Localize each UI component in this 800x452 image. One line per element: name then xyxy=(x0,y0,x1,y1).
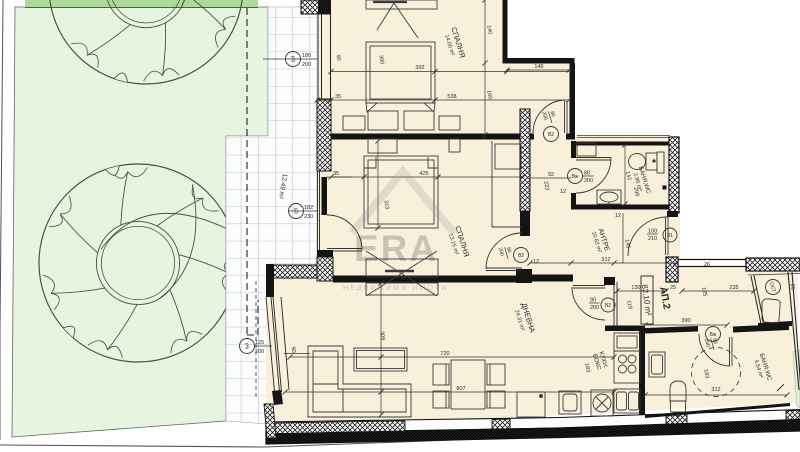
svg-text:180: 180 xyxy=(302,53,311,59)
svg-text:92: 92 xyxy=(548,172,554,178)
svg-text:146: 146 xyxy=(534,64,543,70)
svg-text:В1: В1 xyxy=(667,233,673,239)
svg-text:ERA: ERA xyxy=(354,228,438,269)
svg-text:390: 390 xyxy=(681,318,690,324)
svg-text:80: 80 xyxy=(584,171,590,177)
svg-text:100: 100 xyxy=(648,229,657,235)
svg-text:312: 312 xyxy=(601,257,610,263)
svg-text:12: 12 xyxy=(560,189,566,195)
svg-text:12: 12 xyxy=(615,213,621,219)
svg-text:В2: В2 xyxy=(605,303,611,309)
svg-text:35: 35 xyxy=(333,171,339,177)
svg-text:12: 12 xyxy=(533,259,539,265)
svg-text:538: 538 xyxy=(447,94,456,100)
svg-text:720: 720 xyxy=(440,351,449,357)
svg-text:90: 90 xyxy=(334,54,341,61)
svg-text:182: 182 xyxy=(304,205,313,211)
svg-text:200: 200 xyxy=(590,305,599,311)
svg-text:26: 26 xyxy=(704,262,710,268)
svg-text:25: 25 xyxy=(670,285,676,291)
svg-text:807: 807 xyxy=(456,386,465,392)
svg-text:210: 210 xyxy=(648,236,657,242)
svg-text:200: 200 xyxy=(302,62,311,68)
svg-text:425: 425 xyxy=(419,171,428,177)
svg-text:35: 35 xyxy=(335,94,341,100)
svg-text:235: 235 xyxy=(729,285,738,291)
svg-text:90: 90 xyxy=(590,298,596,304)
svg-text:В2: В2 xyxy=(518,253,524,259)
svg-text:200: 200 xyxy=(584,178,593,184)
svg-text:90: 90 xyxy=(289,346,296,353)
svg-text:312: 312 xyxy=(711,387,720,393)
svg-text:26: 26 xyxy=(788,283,795,290)
svg-text:Вж: Вж xyxy=(572,174,579,180)
svg-text:392: 392 xyxy=(415,65,424,71)
svg-text:В2: В2 xyxy=(548,132,554,138)
svg-text:130: 130 xyxy=(631,285,640,291)
svg-text:НЕДВИЖИМИ ИМОТИ: НЕДВИЖИМИ ИМОТИ xyxy=(343,283,448,292)
svg-text:230: 230 xyxy=(304,214,313,220)
